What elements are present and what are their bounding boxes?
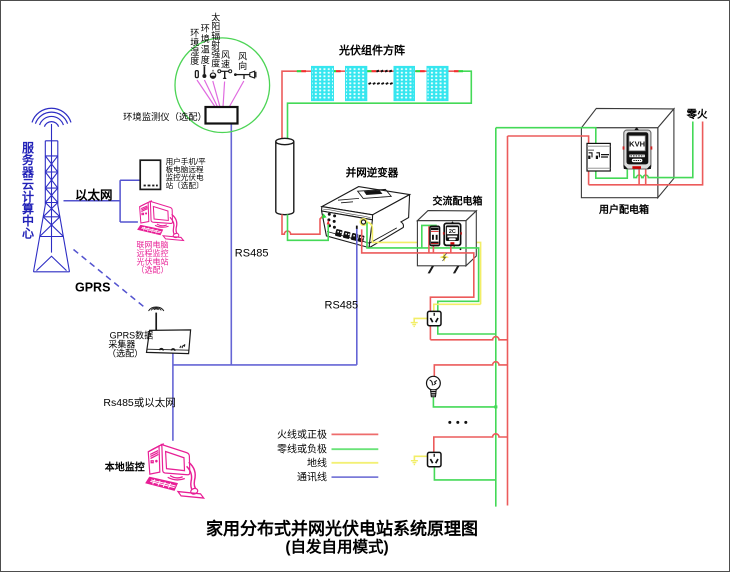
svg-text:太阳辐射强度: 太阳辐射强度 <box>211 11 220 68</box>
svg-text:通讯线: 通讯线 <box>297 471 327 484</box>
svg-text:环境监测仪（选配）: 环境监测仪（选配） <box>123 111 207 122</box>
svg-text:交流配电箱: 交流配电箱 <box>433 195 483 208</box>
svg-text:风向: 风向 <box>238 52 247 71</box>
svg-text:RS485: RS485 <box>325 300 359 312</box>
svg-text:地线: 地线 <box>307 456 327 469</box>
svg-text:家用分布式并网光伏电站系统原理图: 家用分布式并网光伏电站系统原理图 <box>206 519 478 539</box>
svg-text:KVH: KVH <box>629 140 645 149</box>
svg-text:GPRS数据采集器（选配）: GPRS数据采集器（选配） <box>107 330 153 359</box>
svg-text:GPRS: GPRS <box>75 281 110 295</box>
svg-text:以太网: 以太网 <box>75 188 113 203</box>
svg-text:光伏组件方阵: 光伏组件方阵 <box>338 43 405 57</box>
svg-text:风速: 风速 <box>221 50 230 69</box>
svg-text:环境温度: 环境温度 <box>201 24 210 66</box>
svg-text:零线或负极: 零线或负极 <box>277 443 327 456</box>
svg-text:(自发自用模式): (自发自用模式) <box>285 537 388 556</box>
svg-text:联网电脑远程监控光伏电站（选配）: 联网电脑远程监控光伏电站（选配） <box>137 240 169 275</box>
svg-text:Rs485或以太网: Rs485或以太网 <box>103 396 175 409</box>
svg-text:RS485: RS485 <box>235 248 269 260</box>
svg-text:用户手机/平板电脑远程监控光伏电站〔选配〕: 用户手机/平板电脑远程监控光伏电站〔选配〕 <box>166 156 206 190</box>
svg-text:零火: 零火 <box>686 109 708 121</box>
svg-text:环境湿度: 环境湿度 <box>190 28 199 66</box>
svg-text:火线或正极: 火线或正极 <box>277 428 327 441</box>
svg-text:并网逆变器: 并网逆变器 <box>346 166 399 179</box>
svg-text:服务器云计算中心: 服务器云计算中心 <box>21 140 35 240</box>
svg-text:2C: 2C <box>449 229 456 235</box>
svg-text:本地监控: 本地监控 <box>105 461 145 474</box>
svg-text:用户配电箱: 用户配电箱 <box>598 203 649 216</box>
